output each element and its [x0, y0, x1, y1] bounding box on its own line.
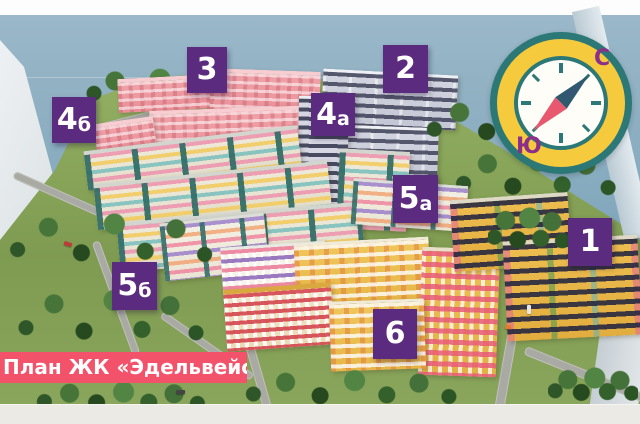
building-marker-2: 2: [383, 45, 428, 93]
model-photo: План ЖК «Эдельвейс» 3 2 4б 4а 5а 1 5б 6: [0, 0, 640, 424]
building-marker-4b: 4б: [52, 97, 96, 143]
tree-cluster: [548, 366, 638, 406]
building-block-6: [223, 282, 335, 351]
compass: С Ю: [490, 32, 632, 174]
marker-number: 5: [399, 184, 420, 214]
compass-needle-icon: [490, 32, 632, 174]
marker-letter: б: [138, 282, 151, 301]
marker-number: 3: [197, 55, 218, 85]
marker-number: 1: [580, 227, 601, 257]
compass-south-label: Ю: [516, 134, 542, 159]
building-marker-1: 1: [568, 218, 612, 266]
car: [176, 390, 185, 394]
tree-cluster: [0, 200, 220, 280]
marker-number: 6: [385, 319, 406, 349]
marker-number: 2: [395, 54, 416, 84]
marker-number: 4: [57, 105, 78, 135]
model-base-edge-bottom: [0, 404, 640, 424]
plan-title-text: План ЖК «Эдельвейс»: [3, 355, 247, 379]
playground-equipment: [505, 325, 511, 329]
marker-letter: а: [337, 110, 350, 129]
tree-cluster: [10, 275, 210, 360]
building-marker-5a: 5а: [393, 175, 438, 223]
tree-cluster: [488, 200, 568, 260]
marker-number: 5: [117, 271, 138, 301]
marker-letter: а: [420, 195, 433, 214]
car: [527, 305, 531, 314]
building-marker-5b: 5б: [112, 262, 157, 310]
plan-title-banner: План ЖК «Эдельвейс»: [0, 352, 247, 383]
compass-north-label: С: [594, 46, 610, 71]
building-marker-6: 6: [373, 309, 417, 359]
marker-number: 4: [316, 100, 337, 130]
building-marker-3: 3: [187, 47, 227, 93]
marker-letter: б: [78, 116, 91, 135]
building-marker-4a: 4а: [311, 93, 355, 136]
